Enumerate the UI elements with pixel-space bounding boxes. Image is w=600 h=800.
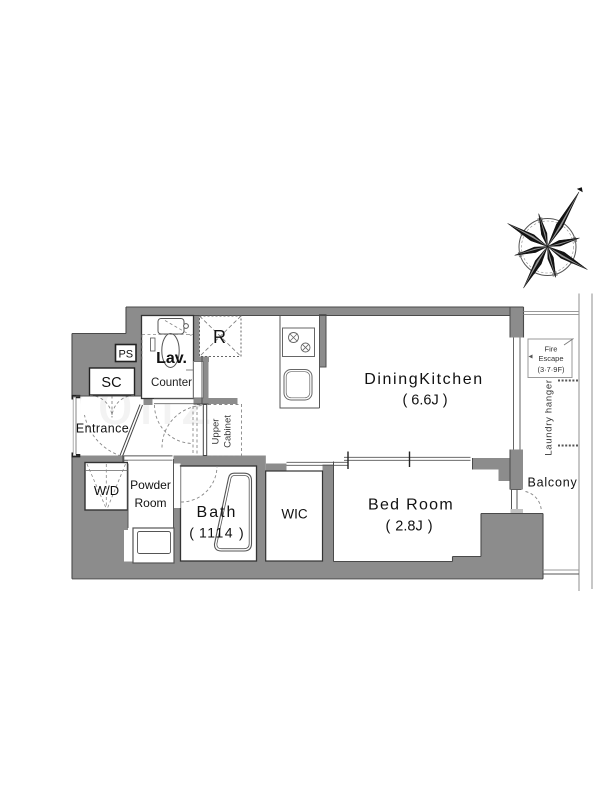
svg-text:Powder: Powder — [130, 478, 171, 492]
svg-text:Counter: Counter — [151, 377, 192, 389]
svg-text:Fire: Fire — [545, 345, 558, 354]
svg-text:PS: PS — [118, 349, 133, 361]
svg-text:WIC: WIC — [281, 507, 307, 522]
svg-text:(3·7·9F): (3·7·9F) — [537, 365, 565, 374]
svg-text:UpperCabinet: UpperCabinet — [211, 415, 234, 448]
svg-text:Bed Room: Bed Room — [368, 497, 454, 514]
svg-text:Escape: Escape — [538, 354, 563, 363]
svg-text:Balcony: Balcony — [527, 476, 577, 490]
svg-text:SC: SC — [101, 375, 121, 391]
svg-text:DiningKitchen: DiningKitchen — [364, 371, 484, 388]
svg-text:R: R — [213, 327, 226, 347]
svg-text:W/D: W/D — [94, 483, 119, 498]
svg-text:Entrance: Entrance — [76, 422, 129, 436]
svg-text:Laundry hanger: Laundry hanger — [544, 379, 555, 455]
svg-text:Lav.: Lav. — [156, 350, 187, 367]
svg-text:Bath: Bath — [197, 504, 238, 521]
svg-text:Room: Room — [134, 496, 166, 510]
